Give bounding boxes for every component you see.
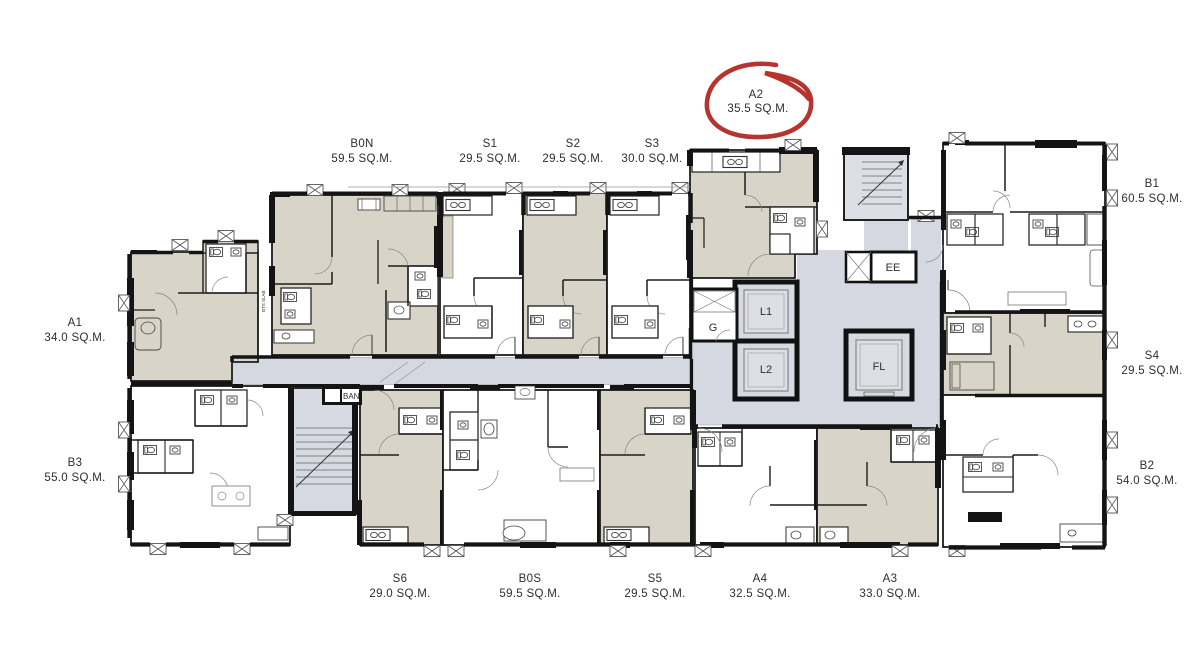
svg-text:G: G <box>709 322 718 334</box>
svg-text:B3: B3 <box>68 457 83 469</box>
svg-text:32.5 SQ.M.: 32.5 SQ.M. <box>729 588 790 600</box>
svg-text:B0S: B0S <box>519 573 542 585</box>
svg-text:55.0 SQ.M.: 55.0 SQ.M. <box>44 472 105 484</box>
svg-text:S2: S2 <box>566 138 581 150</box>
svg-text:A2: A2 <box>749 89 764 101</box>
svg-text:B0N: B0N <box>350 138 373 150</box>
svg-text:S4: S4 <box>1145 350 1160 362</box>
svg-text:S6: S6 <box>393 573 408 585</box>
svg-text:54.0 SQ.M.: 54.0 SQ.M. <box>1116 475 1177 487</box>
svg-text:30.0 SQ.M.: 30.0 SQ.M. <box>621 153 682 165</box>
svg-text:S1: S1 <box>483 138 498 150</box>
svg-text:A4: A4 <box>753 573 768 585</box>
svg-text:S3: S3 <box>645 138 660 150</box>
svg-text:L1: L1 <box>760 306 772 318</box>
svg-text:B1: B1 <box>1145 178 1160 190</box>
svg-text:59.5 SQ.M.: 59.5 SQ.M. <box>331 153 392 165</box>
svg-text:BTS SLAB: BTS SLAB <box>261 290 266 312</box>
svg-text:29.5 SQ.M.: 29.5 SQ.M. <box>542 153 603 165</box>
svg-text:A3: A3 <box>883 573 898 585</box>
svg-text:B2: B2 <box>1140 460 1155 472</box>
svg-text:29.0 SQ.M.: 29.0 SQ.M. <box>369 588 430 600</box>
svg-text:33.0 SQ.M.: 33.0 SQ.M. <box>859 588 920 600</box>
svg-text:FL: FL <box>873 361 886 373</box>
svg-text:29.5 SQ.M.: 29.5 SQ.M. <box>1121 365 1182 377</box>
svg-text:34.0 SQ.M.: 34.0 SQ.M. <box>44 332 105 344</box>
svg-text:59.5 SQ.M.: 59.5 SQ.M. <box>499 588 560 600</box>
svg-text:S5: S5 <box>648 573 663 585</box>
svg-text:A1: A1 <box>68 317 83 329</box>
svg-text:35.5 SQ.M.: 35.5 SQ.M. <box>727 103 788 115</box>
svg-text:29.5 SQ.M.: 29.5 SQ.M. <box>624 588 685 600</box>
svg-text:BAN: BAN <box>343 392 360 401</box>
svg-text:EE: EE <box>886 262 901 274</box>
svg-text:29.5 SQ.M.: 29.5 SQ.M. <box>459 153 520 165</box>
svg-text:60.5 SQ.M.: 60.5 SQ.M. <box>1121 193 1182 205</box>
svg-text:L2: L2 <box>760 364 772 376</box>
